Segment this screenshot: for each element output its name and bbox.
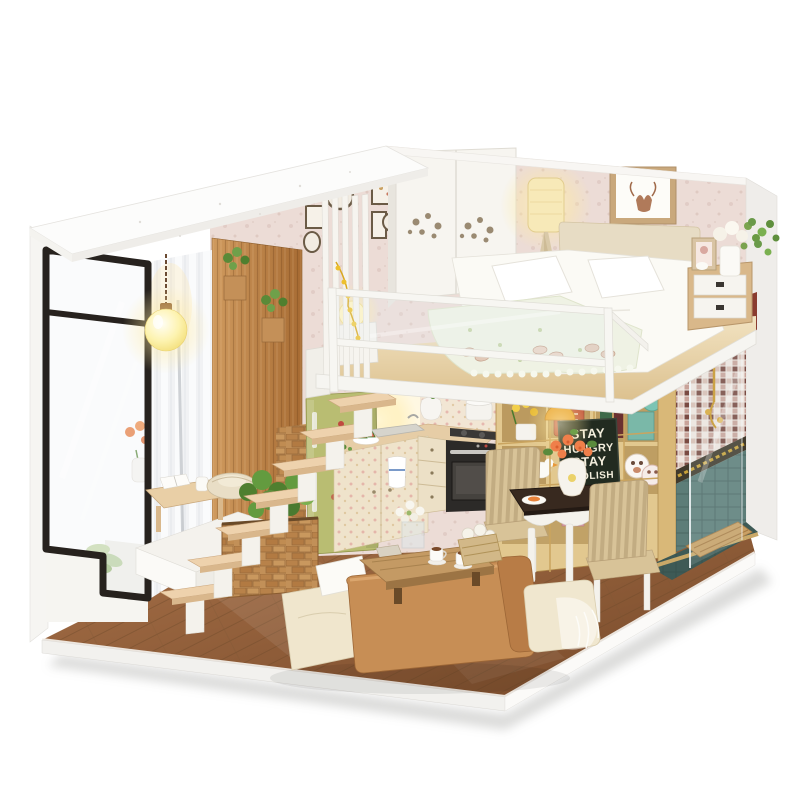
dollhouse-photo: STAY HUNGRY STAY FOOLISH [0, 0, 800, 800]
drawer-stack [418, 436, 446, 514]
white-vase [720, 246, 740, 276]
teacup [196, 477, 208, 491]
railing-post [328, 288, 338, 392]
pendant-bulb [145, 309, 187, 351]
table-leg [394, 588, 402, 604]
lace-pouf [524, 580, 600, 652]
railing-post [604, 308, 614, 402]
table-plate [522, 496, 546, 505]
cabinet-knob [372, 490, 376, 494]
bathroom-divider [658, 374, 676, 566]
cabinet-knob [388, 488, 392, 492]
kitchen-towel [388, 457, 406, 489]
bird-figurine [696, 262, 708, 270]
chaise-ottoman [282, 582, 358, 670]
table-leg [472, 572, 480, 586]
bulb-highlight [153, 315, 163, 329]
